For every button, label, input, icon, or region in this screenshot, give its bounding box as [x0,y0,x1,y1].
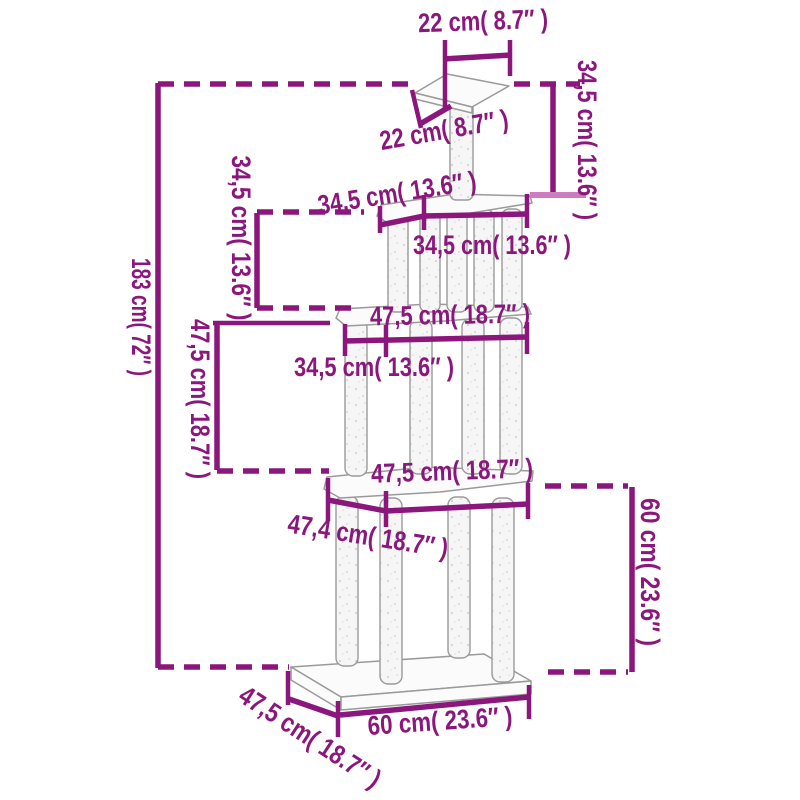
dim-label-top-width: 22 cm( 8.7″ ) [418,4,549,39]
dim-tier2-height [257,212,364,308]
dim-base-section-height [545,486,632,672]
scratching-post [462,319,484,474]
dim-label-tier3-post-spacing: 34,5 cm( 13.6″ ) [294,352,454,382]
dim-label-tier3-width: 47,5 cm( 18.7″ ) [370,299,530,332]
dimension-diagram: 22 cm( 8.7″ ) 22 cm( 8.7″ ) 34,5 cm( 13.… [0,0,800,800]
dim-tier3-height [213,323,330,471]
upper-scratching-posts [388,209,522,312]
dim-label-base-section-height: 60 cm( 23.6″ ) [635,498,665,646]
scratching-post [492,498,514,682]
dim-label-tier2-height: 34,5 cm( 13.6″ ) [226,156,256,321]
dim-label-tier2-width: 34,5 cm( 13.6″ ) [413,230,571,260]
dim-label-tier3-height: 47,5 cm( 18.7″ ) [185,319,215,479]
scratching-post [502,209,522,311]
dim-label-top-post-height: 34,5 cm( 13.6″ ) [572,60,602,220]
scratching-post [448,497,470,658]
dim-label-tier4-depth: 47,4 cm( 18.7″ ) [286,509,451,564]
scratching-post [447,211,467,312]
scratching-post [410,320,432,474]
dim-label-base-width: 60 cm( 23.6″ ) [367,701,514,741]
dim-label-total-height: 183 cm( 72″ ) [126,258,156,376]
dim-label-tier4-width: 47,5 cm( 18.7″ ) [371,453,534,489]
scratching-post [388,212,408,312]
cat-tree-drawing [291,74,533,710]
scratching-post [500,318,522,474]
scratching-post [474,210,494,312]
